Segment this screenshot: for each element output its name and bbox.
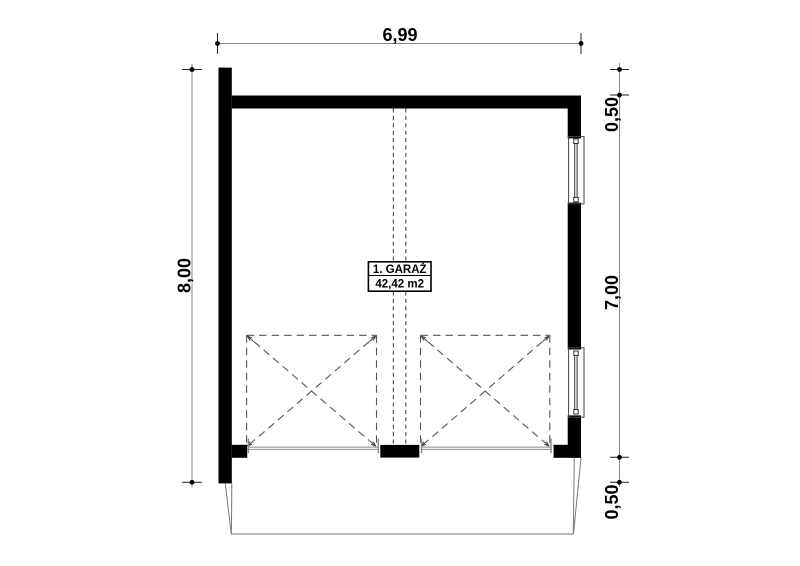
svg-text:42,42 m2: 42,42 m2 — [375, 279, 424, 291]
svg-text:0,50: 0,50 — [602, 484, 622, 519]
svg-text:6,99: 6,99 — [382, 25, 417, 45]
svg-text:1. GARAŻ: 1. GARAŻ — [373, 263, 427, 276]
svg-text:8,00: 8,00 — [175, 258, 195, 293]
svg-text:0,50: 0,50 — [602, 97, 622, 132]
svg-text:7,00: 7,00 — [602, 275, 622, 310]
